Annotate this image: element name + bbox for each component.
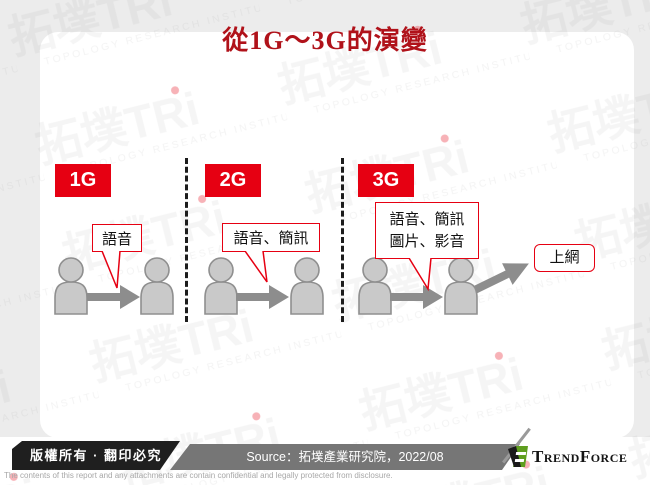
bubble-text: 語音、簡訊 — [223, 227, 319, 248]
speech-bubble-tail — [406, 258, 434, 292]
label-1g: 1G — [55, 164, 111, 197]
label-2g: 2G — [205, 164, 261, 197]
person-icon — [52, 257, 90, 315]
copyright-text: 版權所有 · 翻印必究 — [30, 448, 162, 463]
section-divider — [185, 158, 188, 322]
speech-bubble-tail — [242, 251, 272, 285]
internet-label: 上網 — [534, 244, 595, 272]
speech-bubble-tail — [100, 251, 124, 291]
speech-bubble-3g: 語音、簡訊 圖片、影音 — [375, 202, 479, 259]
bubble-text-line2: 圖片、影音 — [376, 231, 478, 253]
disclaimer-text: The contents of this report and any atta… — [4, 471, 393, 480]
trendforce-logo: TrendForce — [508, 446, 627, 467]
source-text: Source：拓墣產業研究院，2022/08 — [246, 450, 443, 464]
copyright-banner: 版權所有 · 翻印必究 — [12, 441, 180, 470]
right-arrow-icon — [236, 284, 290, 310]
bubble-text: 語音 — [93, 228, 141, 249]
page-title: 從1G～3G的演變 — [0, 20, 650, 57]
person-icon — [138, 257, 176, 315]
trendforce-logo-icon — [508, 446, 528, 467]
person-icon — [202, 257, 240, 315]
person-icon — [288, 257, 326, 315]
speech-bubble-1g: 語音 — [92, 224, 142, 252]
label-3g: 3G — [358, 164, 414, 197]
source-bar: Source：拓墣產業研究院，2022/08 — [170, 444, 520, 470]
section-divider — [341, 158, 344, 322]
person-icon — [356, 257, 394, 315]
speech-bubble-2g: 語音、簡訊 — [222, 223, 320, 252]
person-icon — [442, 257, 480, 315]
bubble-text-line1: 語音、簡訊 — [376, 209, 478, 231]
slide: 拓墣TRi TOPOLOGY RESEARCH INSTITUTE 從1G～3G… — [0, 0, 650, 485]
trendforce-logo-text: TrendForce — [532, 447, 627, 467]
